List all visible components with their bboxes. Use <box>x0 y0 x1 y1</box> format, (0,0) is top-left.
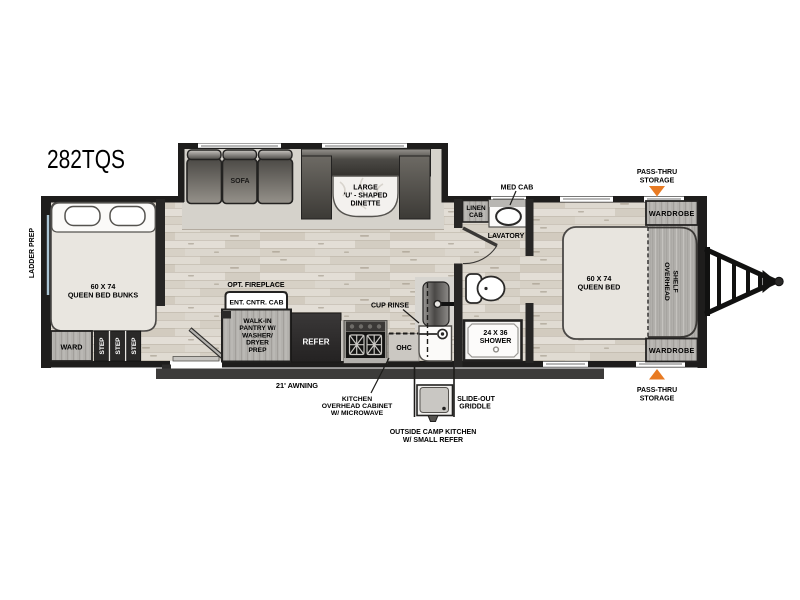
svg-text:SHOWER: SHOWER <box>480 338 512 345</box>
svg-text:WASHER/: WASHER/ <box>242 332 273 339</box>
svg-text:LARGE: LARGE <box>353 185 378 192</box>
svg-text:282TQS: 282TQS <box>47 146 125 175</box>
svg-text:PASS-THRU: PASS-THRU <box>637 387 677 394</box>
svg-text:'U' - SHAPED: 'U' - SHAPED <box>344 193 388 200</box>
svg-text:GRIDDLE: GRIDDLE <box>459 404 491 411</box>
svg-text:WARDROBE: WARDROBE <box>649 346 695 355</box>
svg-text:SOFA: SOFA <box>230 178 249 185</box>
svg-text:WALK-IN: WALK-IN <box>243 318 271 325</box>
svg-text:SLIDE-OUT: SLIDE-OUT <box>457 396 495 403</box>
svg-text:LAVATORY: LAVATORY <box>488 233 525 240</box>
svg-text:OPT. FIREPLACE: OPT. FIREPLACE <box>227 282 285 289</box>
svg-text:QUEEN BED: QUEEN BED <box>578 283 621 292</box>
svg-text:DINETTE: DINETTE <box>351 201 381 208</box>
svg-text:OUTSIDE CAMP KITCHEN: OUTSIDE CAMP KITCHEN <box>390 429 477 436</box>
svg-text:W/ MICROWAVE: W/ MICROWAVE <box>331 410 384 417</box>
svg-text:REFER: REFER <box>302 338 329 347</box>
svg-text:STORAGE: STORAGE <box>640 396 675 403</box>
svg-text:WARDROBE: WARDROBE <box>649 209 695 218</box>
svg-text:STEP: STEP <box>99 337 106 355</box>
svg-text:WARD: WARD <box>61 343 83 352</box>
svg-text:OHC: OHC <box>396 345 412 352</box>
svg-text:STEP: STEP <box>115 337 122 355</box>
svg-text:OVERHEAD CABINET: OVERHEAD CABINET <box>322 403 393 410</box>
svg-text:DRYER: DRYER <box>246 340 269 347</box>
svg-text:OVERHEAD: OVERHEAD <box>663 262 670 301</box>
svg-text:W/ SMALL REFER: W/ SMALL REFER <box>403 437 463 444</box>
svg-text:STEP: STEP <box>131 337 138 355</box>
svg-text:ENT. CNTR. CAB: ENT. CNTR. CAB <box>230 300 284 307</box>
svg-text:PANTRY W/: PANTRY W/ <box>239 325 275 332</box>
svg-text:PASS-THRU: PASS-THRU <box>637 169 677 176</box>
svg-text:STORAGE: STORAGE <box>640 178 675 185</box>
svg-text:LINEN: LINEN <box>466 205 486 212</box>
svg-text:KITCHEN: KITCHEN <box>342 396 372 403</box>
svg-text:24 X 36: 24 X 36 <box>483 330 507 337</box>
svg-text:SHELF: SHELF <box>672 270 679 292</box>
svg-text:CUP RINSE: CUP RINSE <box>371 303 409 310</box>
svg-text:MED CAB: MED CAB <box>501 185 534 192</box>
svg-text:LADDER PREP: LADDER PREP <box>29 228 36 279</box>
svg-text:QUEEN BED BUNKS: QUEEN BED BUNKS <box>68 291 138 300</box>
svg-text:21' AWNING: 21' AWNING <box>276 381 318 390</box>
svg-text:PREP: PREP <box>249 347 268 354</box>
svg-text:CAB: CAB <box>469 212 483 219</box>
